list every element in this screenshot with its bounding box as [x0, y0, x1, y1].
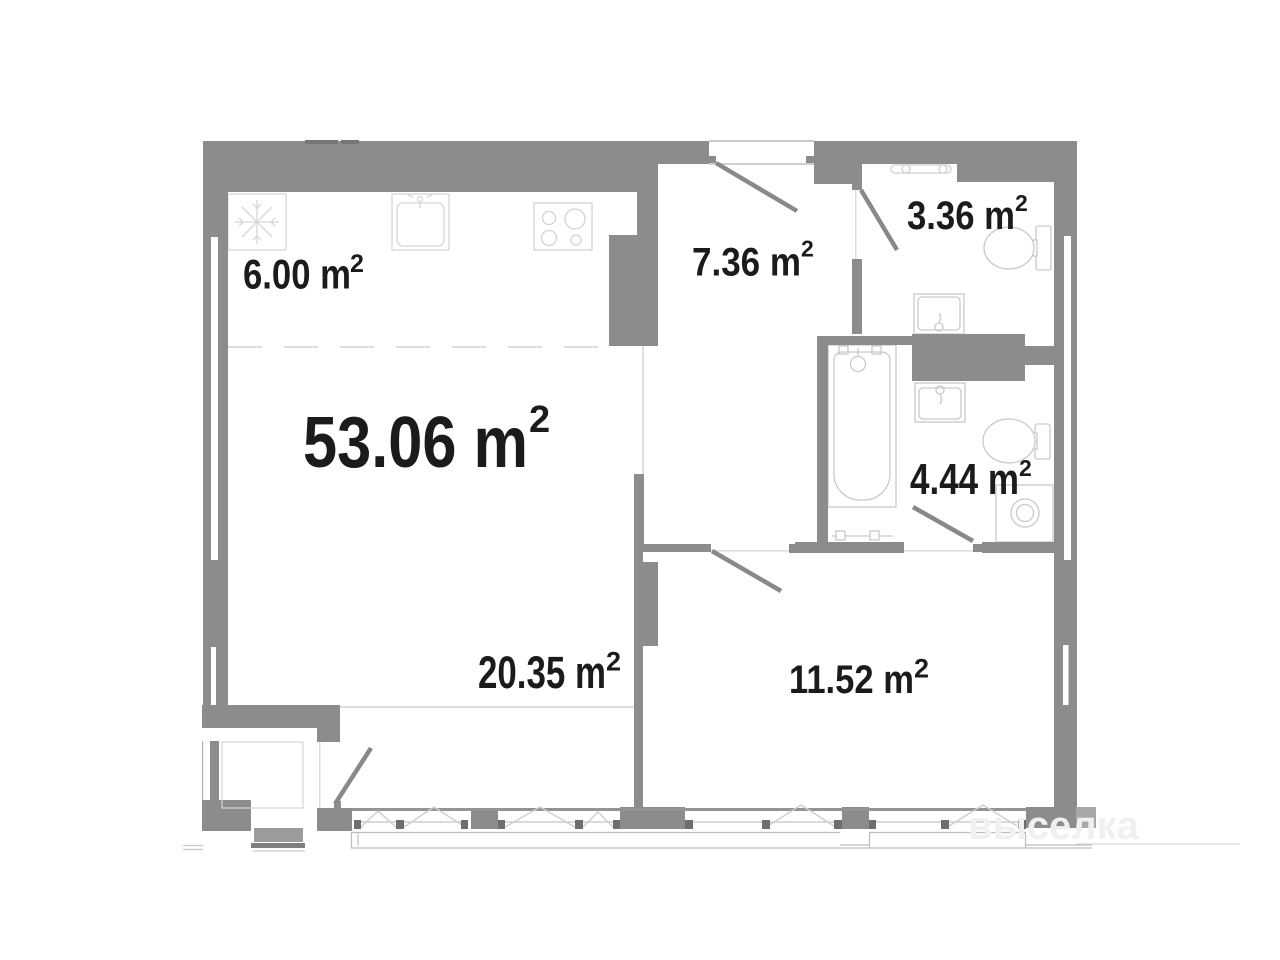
svg-text:20.35 m: 20.35 m — [478, 647, 606, 698]
svg-text:2: 2 — [529, 399, 550, 441]
svg-text:2: 2 — [606, 647, 621, 677]
svg-text:2: 2 — [1015, 190, 1028, 216]
svg-text:выселка: выселка — [968, 804, 1140, 848]
svg-text:2: 2 — [801, 236, 814, 262]
svg-text:2: 2 — [350, 250, 364, 278]
svg-text:2: 2 — [914, 654, 929, 684]
svg-text:6.00 m: 6.00 m — [243, 251, 351, 298]
svg-text:2: 2 — [1019, 455, 1032, 481]
svg-text:7.36 m: 7.36 m — [692, 241, 801, 285]
svg-text:11.52 m: 11.52 m — [789, 658, 914, 702]
svg-text:3.36 m: 3.36 m — [907, 194, 1015, 238]
svg-text:53.06 m: 53.06 m — [303, 402, 528, 483]
svg-text:4.44 m: 4.44 m — [910, 456, 1019, 504]
